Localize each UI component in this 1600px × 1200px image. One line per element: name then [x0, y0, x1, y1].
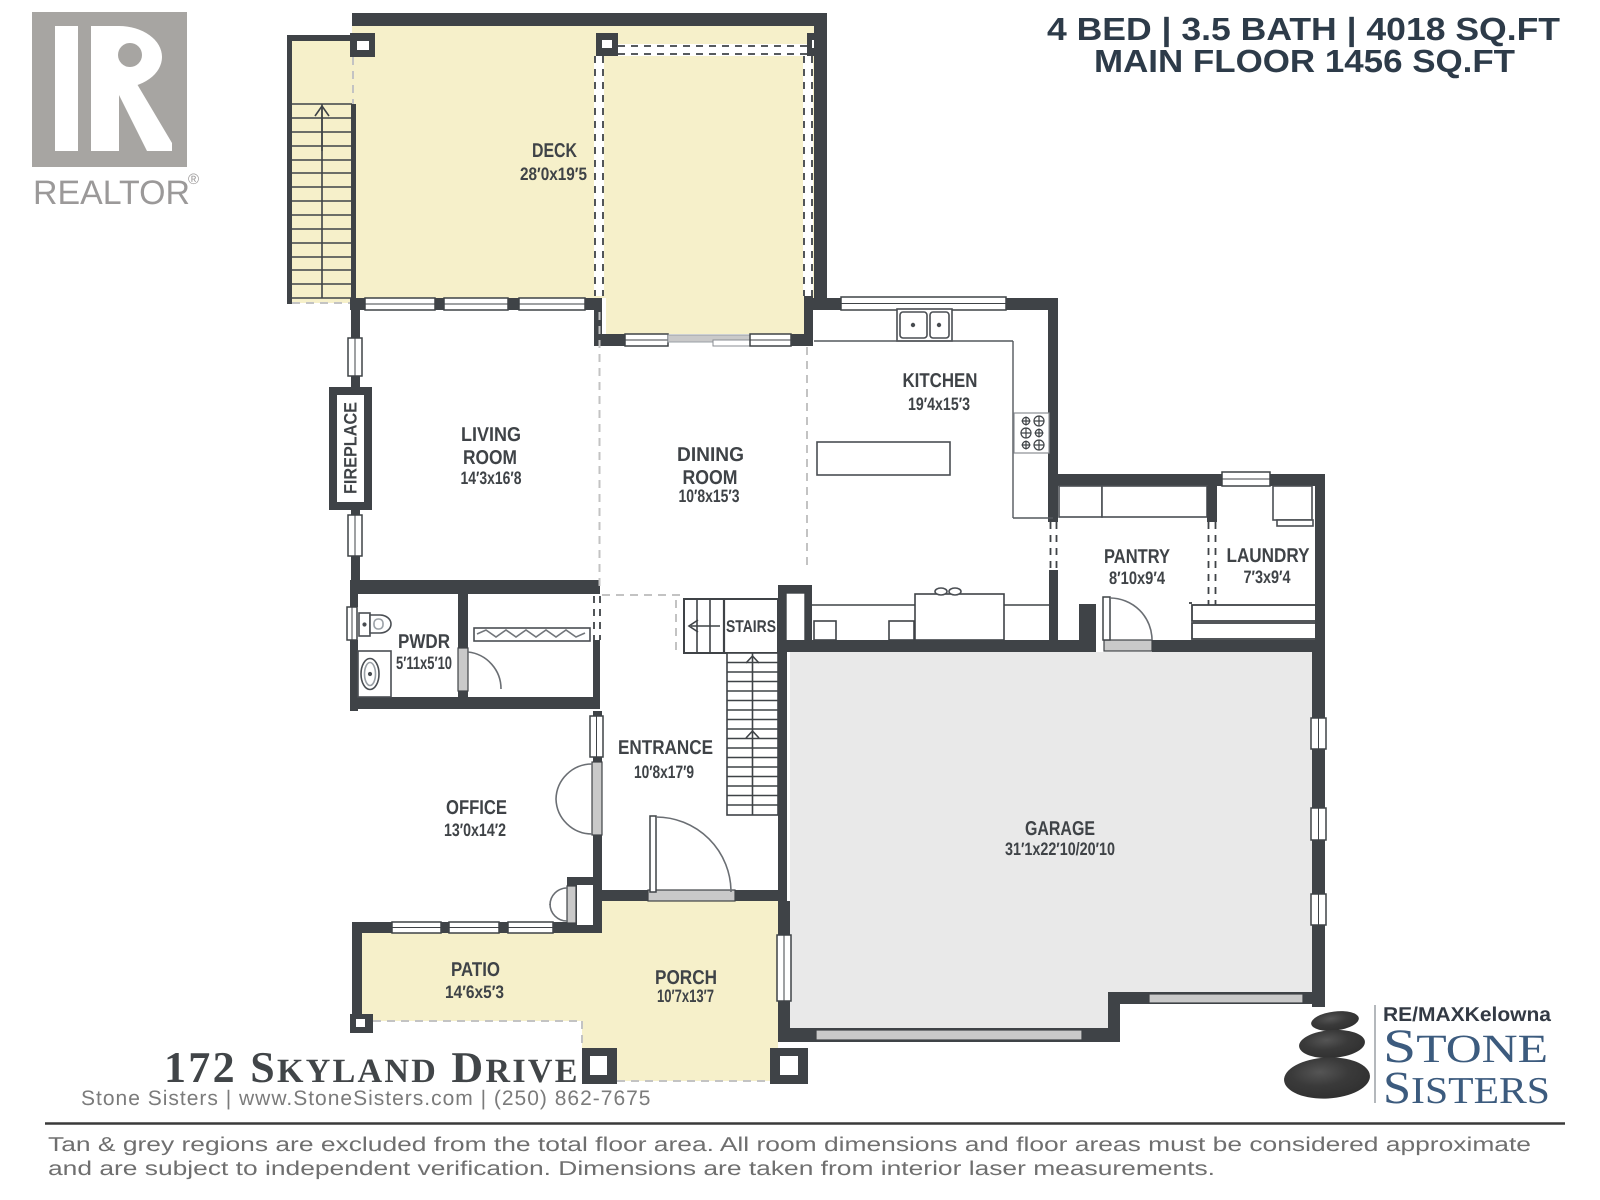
- svg-text:8′10x9′4: 8′10x9′4: [1109, 568, 1165, 588]
- svg-text:14′3x16′8: 14′3x16′8: [461, 468, 522, 488]
- svg-text:DECK: DECK: [532, 140, 577, 162]
- svg-text:ENTRANCE: ENTRANCE: [618, 737, 713, 759]
- svg-text:DINING: DINING: [677, 444, 744, 466]
- svg-text:FIREPLACE: FIREPLACE: [341, 402, 361, 494]
- svg-text:LIVING: LIVING: [461, 424, 521, 446]
- svg-text:5′11x5′10: 5′11x5′10: [396, 653, 452, 673]
- svg-text:SISTERS: SISTERS: [1383, 1062, 1550, 1113]
- svg-text:MAIN FLOOR 1456 SQ.FT: MAIN FLOOR 1456 SQ.FT: [1094, 43, 1515, 79]
- svg-text:ROOM: ROOM: [463, 447, 517, 469]
- svg-text:10′7x13′7: 10′7x13′7: [657, 986, 714, 1006]
- svg-text:Tan & grey regions are exclude: Tan & grey regions are excluded from the…: [48, 1134, 1531, 1156]
- svg-text:10′8x15′3: 10′8x15′3: [679, 486, 740, 506]
- svg-text:KITCHEN: KITCHEN: [903, 370, 978, 392]
- svg-text:PWDR: PWDR: [398, 631, 450, 653]
- svg-text:10′8x17′9: 10′8x17′9: [634, 762, 694, 782]
- svg-text:PATIO: PATIO: [451, 959, 500, 981]
- svg-text:28′0x19′5: 28′0x19′5: [520, 164, 587, 184]
- svg-text:LAUNDRY: LAUNDRY: [1227, 545, 1311, 567]
- svg-text:PANTRY: PANTRY: [1104, 546, 1171, 568]
- svg-text:GARAGE: GARAGE: [1025, 818, 1095, 840]
- svg-text:14′6x5′3: 14′6x5′3: [445, 982, 504, 1002]
- svg-text:®: ®: [188, 171, 199, 188]
- svg-text:7′3x9′4: 7′3x9′4: [1244, 567, 1291, 587]
- svg-text:OFFICE: OFFICE: [446, 797, 507, 819]
- svg-text:and are subject to independent: and are subject to independent verificat…: [48, 1158, 1215, 1180]
- svg-text:13′0x14′2: 13′0x14′2: [444, 820, 506, 840]
- svg-text:Stone Sisters | www.StoneSiste: Stone Sisters | www.StoneSisters.com | (…: [81, 1087, 651, 1110]
- svg-text:REALTOR: REALTOR: [33, 174, 190, 212]
- svg-text:31′1x22′10/20′10: 31′1x22′10/20′10: [1005, 839, 1115, 859]
- svg-text:19′4x15′3: 19′4x15′3: [908, 394, 970, 414]
- svg-text:STAIRS: STAIRS: [726, 617, 776, 636]
